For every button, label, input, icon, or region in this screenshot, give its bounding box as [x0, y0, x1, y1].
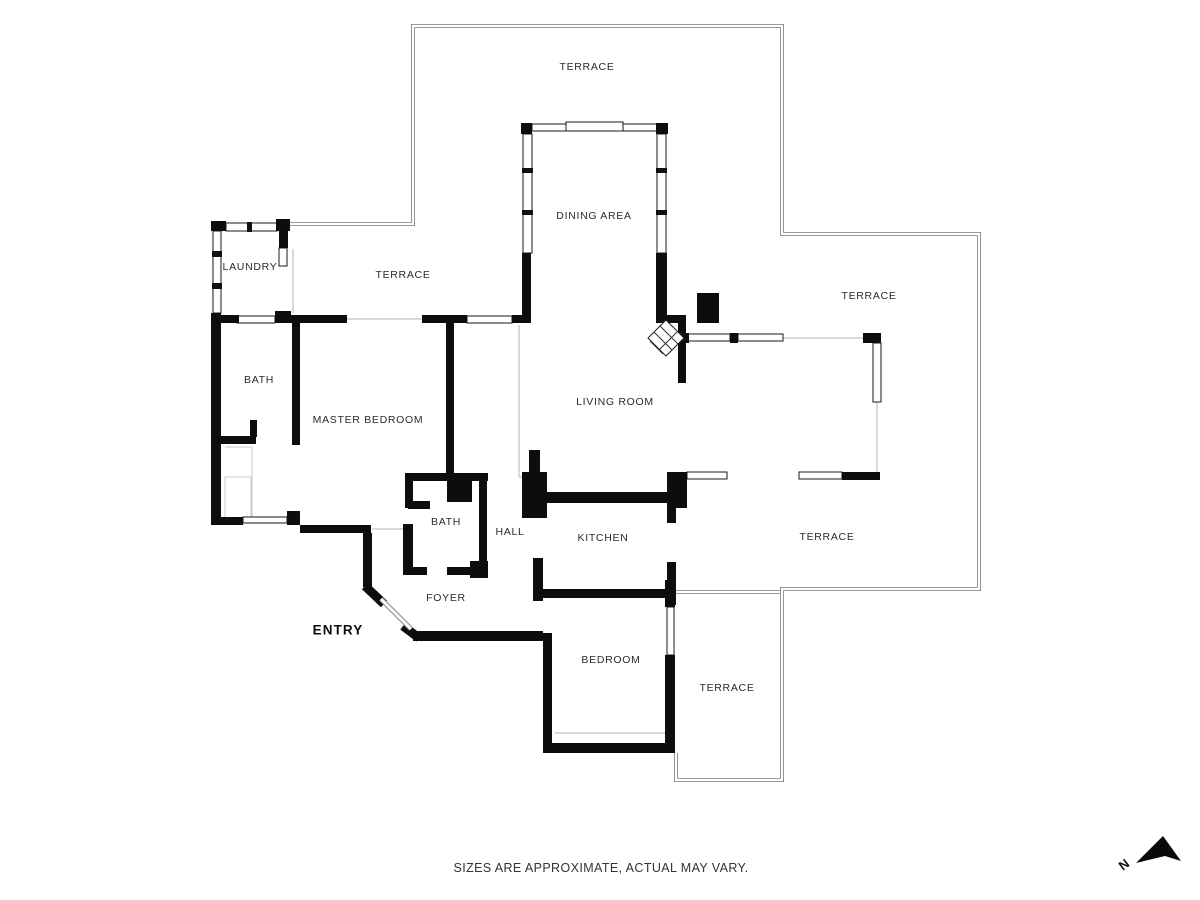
- room-label-terrace-left: TERRACE: [375, 269, 430, 281]
- room-label-master-bedroom: MASTER BEDROOM: [313, 414, 424, 426]
- room-label-foyer: FOYER: [426, 592, 466, 604]
- room-label-bedroom: BEDROOM: [581, 654, 640, 666]
- floor-plan: N TERRACEDINING AREALAUNDRYTERRACETERRAC…: [0, 0, 1200, 900]
- disclaimer-text: SIZES ARE APPROXIMATE, ACTUAL MAY VARY.: [453, 861, 748, 875]
- room-label-laundry: LAUNDRY: [223, 261, 278, 273]
- room-label-terrace-bottom: TERRACE: [699, 682, 754, 694]
- room-label-terrace-southeast: TERRACE: [799, 531, 854, 543]
- room-label-hall: HALL: [495, 526, 524, 538]
- room-label-kitchen: KITCHEN: [578, 532, 629, 544]
- room-label-terrace-top: TERRACE: [559, 61, 614, 73]
- room-label-living-room: LIVING ROOM: [576, 396, 654, 408]
- room-label-entry: ENTRY: [313, 623, 364, 638]
- room-labels: TERRACEDINING AREALAUNDRYTERRACETERRACEB…: [0, 0, 1200, 900]
- room-label-bath-hall: BATH: [431, 516, 461, 528]
- room-label-bath-master: BATH: [244, 374, 274, 386]
- room-label-terrace-right: TERRACE: [841, 290, 896, 302]
- room-label-dining-area: DINING AREA: [556, 210, 631, 222]
